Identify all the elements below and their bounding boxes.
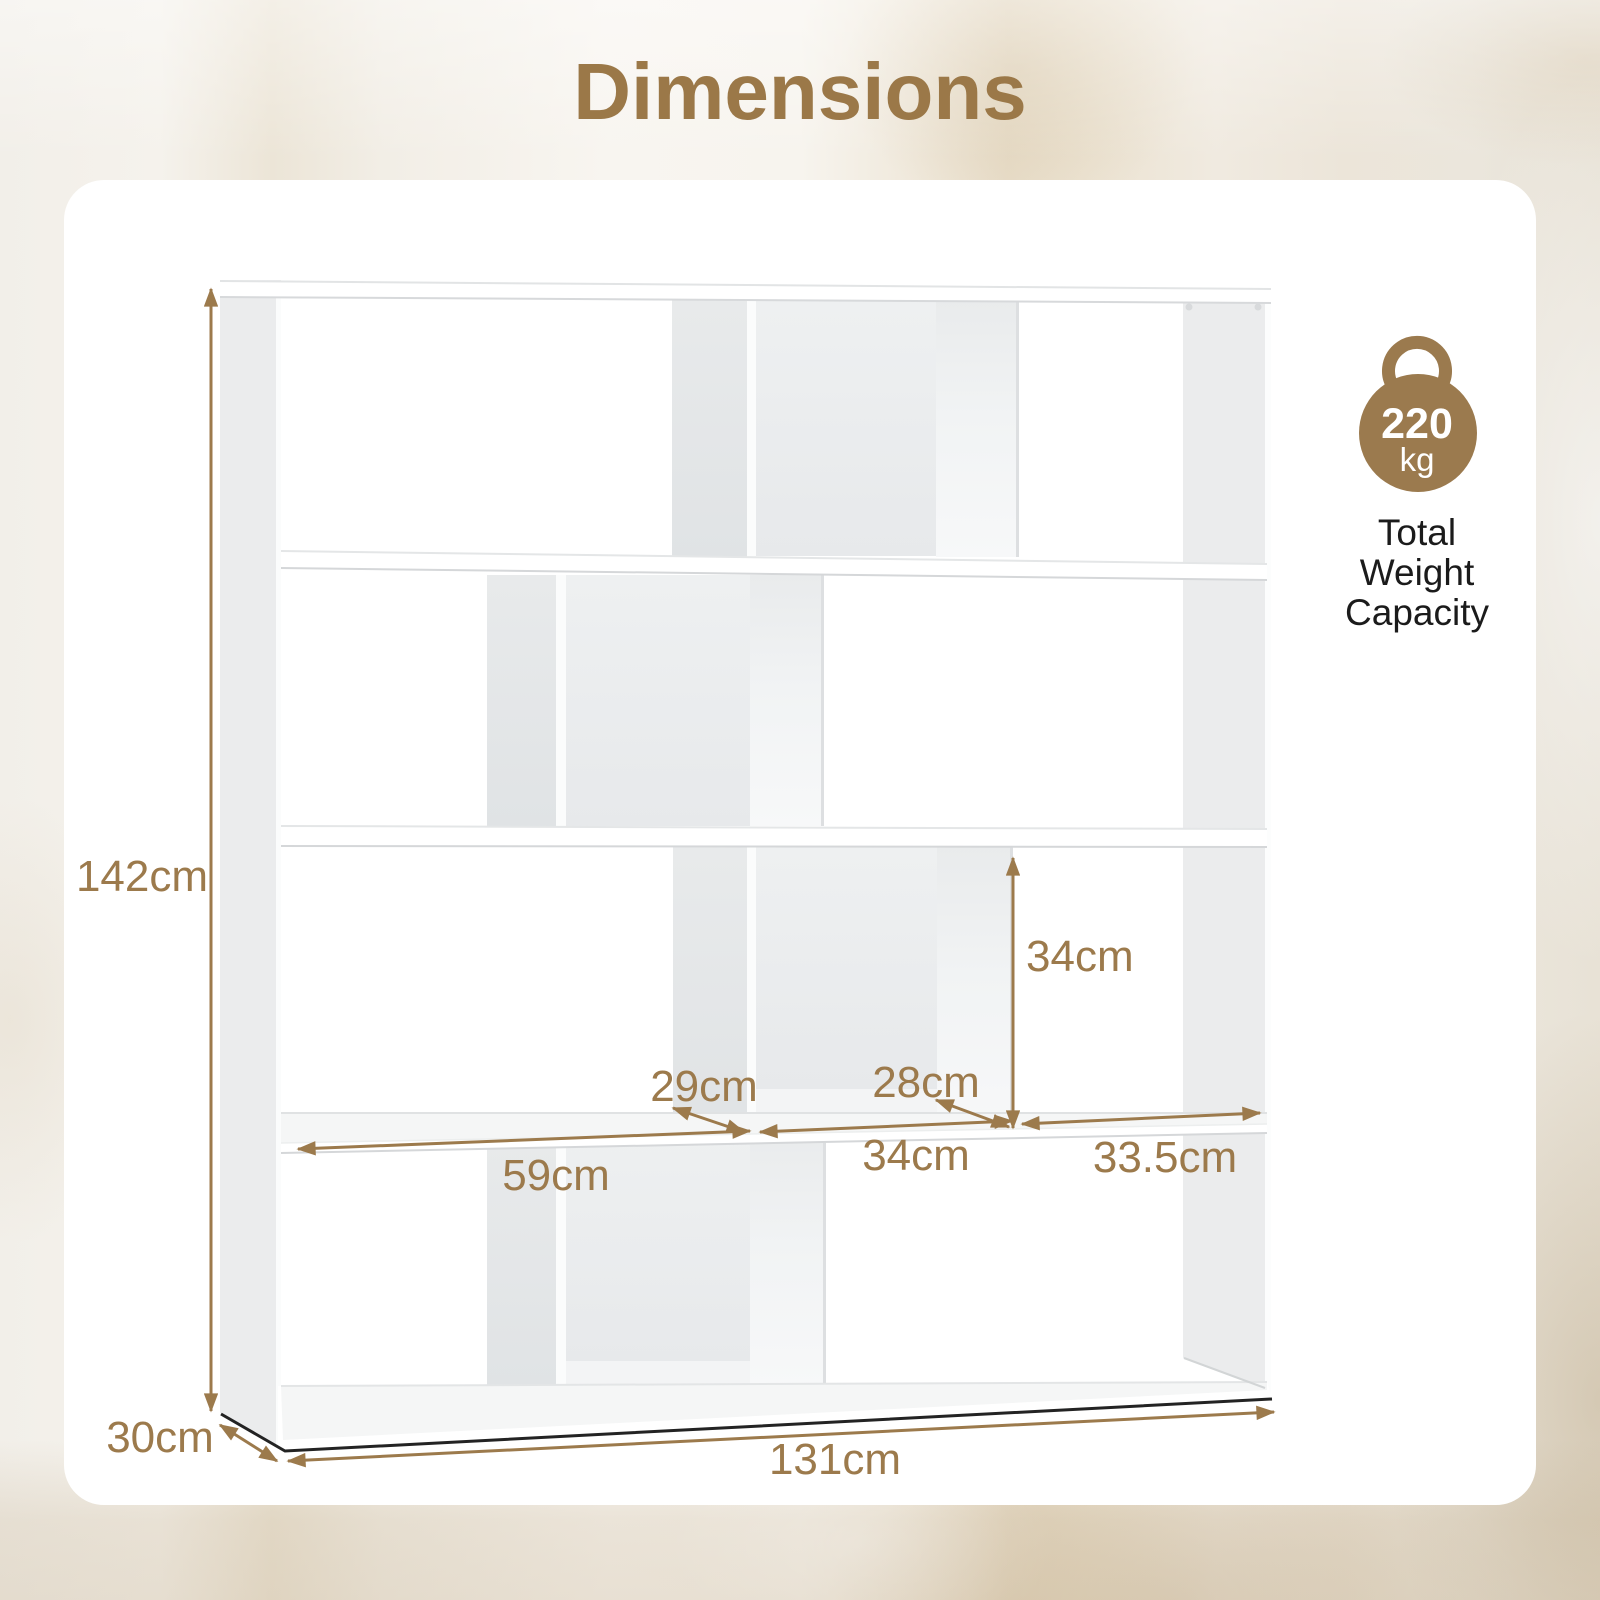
svg-text:131cm: 131cm: [769, 1435, 901, 1484]
svg-text:34cm: 34cm: [1026, 932, 1134, 981]
svg-text:Capacity: Capacity: [1345, 592, 1489, 633]
svg-text:29cm: 29cm: [650, 1062, 758, 1111]
svg-text:Weight: Weight: [1360, 552, 1475, 593]
svg-text:kg: kg: [1400, 441, 1435, 478]
svg-text:Total: Total: [1378, 512, 1456, 553]
svg-text:142cm: 142cm: [76, 852, 208, 901]
svg-text:59cm: 59cm: [502, 1151, 610, 1200]
svg-text:28cm: 28cm: [872, 1058, 980, 1107]
svg-text:33.5cm: 33.5cm: [1093, 1133, 1237, 1182]
svg-text:34cm: 34cm: [862, 1131, 970, 1180]
svg-text:Dimensions: Dimensions: [573, 47, 1026, 136]
svg-text:30cm: 30cm: [106, 1413, 214, 1462]
